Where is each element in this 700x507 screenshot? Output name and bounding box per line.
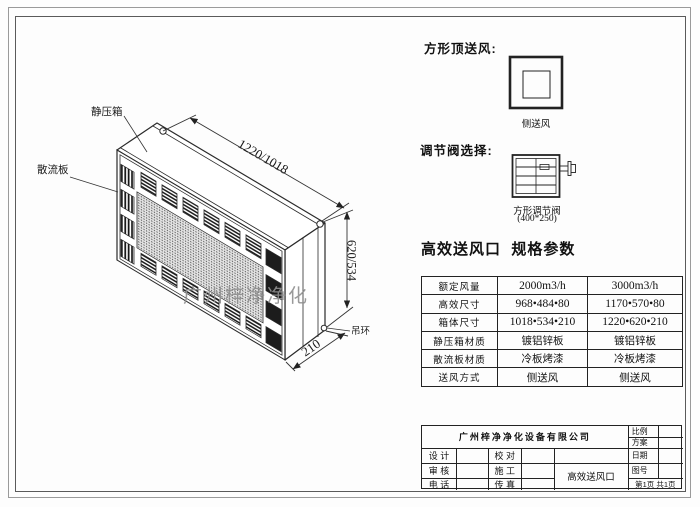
design-label: 设 计	[422, 448, 456, 463]
spec-label: 送风方式	[422, 368, 498, 386]
date-label: 日期	[629, 448, 658, 463]
label-static-pressure-box: 静压箱	[91, 104, 123, 119]
spec-label: 箱体尺寸	[422, 313, 498, 331]
spec-label: 高效尺寸	[422, 295, 498, 313]
page-info: 第1页 共1页	[628, 478, 683, 490]
fax-label: 传 真	[489, 478, 522, 490]
spec-value: 冷板烤漆	[498, 350, 588, 368]
label-diffuser-plate: 散流板	[37, 162, 69, 177]
company-name: 广州梓净净化设备有限公司	[422, 426, 628, 448]
watermark-text: 广州梓净净化	[183, 281, 309, 308]
spec-value: 镀铝锌板	[498, 331, 588, 349]
spec-value: 侧送风	[498, 368, 588, 386]
table-row: 高效尺寸 968•484•80 1170•570•80	[422, 295, 683, 313]
table-row: 静压箱材质 镀铝锌板 镀铝锌板	[422, 331, 683, 349]
spec-label: 静压箱材质	[422, 331, 498, 349]
spec-value: 2000m3/h	[498, 277, 588, 295]
phone-label: 电 话	[422, 478, 456, 490]
spec-label: 额定风量	[422, 277, 498, 295]
check-label: 校 对	[489, 448, 522, 463]
dimension-height: 620/534	[344, 211, 359, 311]
spec-value: 镀铝锌板	[588, 331, 683, 349]
top-supply-caption: 侧送风	[508, 116, 564, 130]
drawing-sheet: 静压箱 散流板 吊环 1220/1018 620/534 210 广州梓净净化 …	[0, 0, 700, 507]
table-row: 散流板材质 冷板烤漆 冷板烤漆	[422, 350, 683, 368]
spec-value: 冷板烤漆	[588, 350, 683, 368]
construction-label: 施 工	[489, 463, 522, 478]
spec-table-title: 高效送风口 规格参数	[421, 238, 575, 259]
table-row: 箱体尺寸 1018•534•210 1220•620•210	[422, 313, 683, 331]
table-row: 额定风量 2000m3/h 3000m3/h	[422, 277, 683, 295]
top-supply-title: 方形顶送风:	[424, 38, 497, 57]
review-label: 审 核	[422, 463, 456, 478]
plan-label: 方案	[629, 437, 658, 447]
drawing-no-label: 图号	[629, 463, 658, 478]
spec-value: 1220•620•210	[588, 313, 683, 331]
title-block: 广州梓净净化设备有限公司 比例 方案 设 计 校 对 日期 审 核 施 工 图号…	[421, 425, 682, 489]
square-outlet-diagram	[510, 57, 562, 108]
spec-value: 1018•534•210	[498, 313, 588, 331]
label-lifting-ring: 吊环	[351, 323, 370, 337]
spec-table: 额定风量 2000m3/h 3000m3/h 高效尺寸 968•484•80 1…	[421, 276, 683, 387]
scale-label: 比例	[629, 426, 658, 437]
spec-label: 散流板材质	[422, 350, 498, 368]
spec-value: 1170•570•80	[588, 295, 683, 313]
spec-value: 3000m3/h	[588, 277, 683, 295]
damper-valve-diagram	[513, 155, 576, 197]
product-name: 高效送风口	[554, 463, 627, 490]
table-row: 送风方式 侧送风 侧送风	[422, 368, 683, 386]
valve-title: 调节阀选择:	[420, 140, 493, 159]
spec-value: 968•484•80	[498, 295, 588, 313]
spec-value: 侧送风	[588, 368, 683, 386]
valve-size-caption: (400*250)	[508, 214, 566, 224]
